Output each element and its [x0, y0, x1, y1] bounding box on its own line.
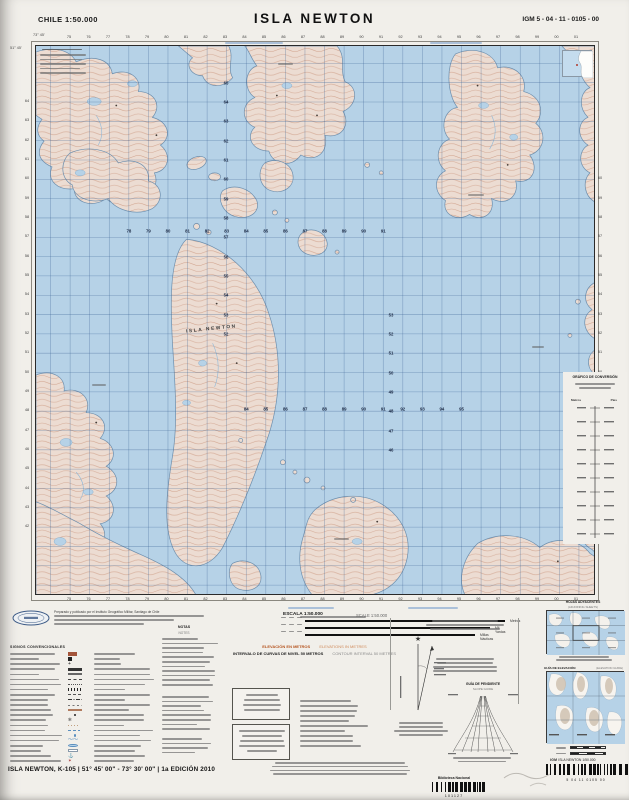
grid-number-label: 57 — [224, 235, 229, 240]
edge-grid-label: 97 — [496, 35, 500, 39]
text-smudge — [426, 624, 504, 626]
legend-label-smudge — [10, 699, 48, 701]
grid-number-label: 90 — [361, 407, 366, 412]
legend-label-smudge — [94, 725, 124, 727]
faint-print-mark — [288, 607, 334, 609]
elevation-guide-title-en: (ELEVATION GUIDE) — [596, 666, 623, 670]
slope-guide-diagram — [448, 692, 518, 756]
scale-tick-smudge — [297, 617, 302, 619]
mini-scale-bar — [570, 746, 606, 749]
edge-grid-label: 61 — [25, 157, 29, 161]
elevation-units-line: ELEVACIÓN EN METROS ELEVATIONS IN METRES — [0, 644, 629, 649]
legend-row: ✶ — [10, 759, 160, 763]
islet-dot — [575, 299, 580, 304]
text-smudge — [275, 762, 406, 764]
fence-icon — [68, 705, 82, 706]
islet-dot — [335, 250, 339, 254]
grid-number-label: 92 — [400, 407, 405, 412]
edge-grid-label: 92 — [398, 35, 402, 39]
conversion-subtext-smudge — [575, 383, 615, 385]
text-smudge — [162, 661, 210, 663]
grid-number-label: 65 — [224, 80, 229, 85]
edge-grid-label: 86 — [281, 35, 285, 39]
place-name-smudge — [92, 384, 106, 386]
legend-label-smudge — [94, 694, 150, 696]
scale-tick-smudge — [297, 624, 302, 626]
legend-label-smudge — [10, 714, 53, 716]
scale-bar-label: Metros — [510, 619, 520, 623]
scale-tick-smudge — [289, 624, 294, 626]
grid-number-label: 56 — [224, 254, 229, 259]
text-smudge — [162, 714, 211, 716]
edge-grid-label: 77 — [106, 35, 110, 39]
inset-row-smudge — [40, 59, 82, 61]
text-smudge — [246, 694, 279, 696]
edge-grid-label: 82 — [203, 35, 207, 39]
grid-number-label: 50 — [389, 370, 394, 375]
slope-guide-title-en: SLOPE GUIDE — [448, 687, 518, 691]
grid-number-label: 49 — [389, 389, 394, 394]
legend-label-smudge — [10, 674, 39, 676]
edge-grid-label: 81 — [184, 35, 188, 39]
text-smudge — [300, 735, 353, 737]
text-smudge — [239, 730, 286, 732]
legend-label-smudge — [10, 750, 41, 752]
grid-number-label: 79 — [146, 229, 151, 234]
islet-dot — [194, 223, 200, 229]
legend-label-smudge — [94, 730, 153, 732]
elevation-guide-map — [546, 671, 624, 743]
legend-row — [10, 713, 160, 717]
legend-label-smudge — [10, 745, 43, 747]
legend-row: ⚓ — [10, 754, 160, 758]
islet-dot — [239, 438, 243, 442]
text-smudge — [273, 773, 407, 775]
mini-scale-bar — [570, 752, 606, 755]
legend-label-smudge — [94, 755, 145, 757]
scale-tick-smudge — [289, 631, 294, 633]
legend-row — [10, 703, 160, 707]
edge-grid-label: 64 — [25, 99, 29, 103]
place-name-smudge — [278, 63, 293, 65]
map-sheet-scan: CHILE 1:50.000 ISLA NEWTON IGM 5 - 04 - … — [0, 0, 629, 800]
edge-grid-label: 53 — [25, 312, 29, 316]
edge-grid-label: 83 — [223, 35, 227, 39]
faint-print-mark — [408, 607, 458, 609]
edge-grid-label: 63 — [25, 118, 29, 122]
islet-dot — [272, 210, 277, 215]
edge-grid-label: 01 — [574, 35, 578, 39]
text-smudge — [162, 675, 215, 677]
marsh-icon — [68, 730, 80, 731]
legend-label-smudge — [94, 674, 150, 676]
islet — [260, 161, 293, 192]
grid-number-label: 86 — [283, 407, 288, 412]
legend-row: + — [10, 662, 160, 666]
publisher-smudge — [54, 619, 174, 621]
legend-label-smudge — [94, 658, 120, 660]
legend-label-smudge — [10, 719, 46, 721]
text-smudge — [239, 745, 285, 747]
conversion-graph-title: GRÁFICO DE CONVERSIÓN — [563, 375, 627, 379]
grid-number-label: 80 — [166, 229, 171, 234]
edge-grid-label: 00 — [554, 35, 558, 39]
legend-label-smudge — [94, 760, 134, 762]
edge-grid-label: 48 — [25, 408, 29, 412]
legend-label-smudge — [94, 745, 141, 747]
legend-row — [10, 672, 160, 676]
scale-title-en: SCALE 1:50.000 — [356, 613, 387, 618]
text-smudge — [162, 656, 214, 658]
place-name-smudge — [532, 346, 544, 348]
legend-row — [10, 688, 160, 692]
library-number: 101127 — [421, 794, 487, 798]
edge-grid-label: 42 — [25, 524, 29, 528]
metros-column-header: Metros — [571, 398, 581, 402]
legend-label-smudge — [10, 735, 62, 737]
grid-number-label: 60 — [224, 177, 229, 182]
grid-number-label: 89 — [342, 407, 347, 412]
legend-label-smudge — [94, 719, 144, 721]
edge-grid-label: 89 — [340, 35, 344, 39]
sand-icon — [68, 725, 80, 727]
edge-grid-label: 47 — [25, 428, 29, 432]
text-smudge — [162, 679, 210, 681]
edge-grid-label: 46 — [25, 447, 29, 451]
library-barcode — [432, 782, 476, 792]
grid-number-label: 58 — [224, 215, 229, 220]
text-smudge — [240, 740, 283, 742]
legend-label-smudge — [94, 740, 151, 742]
grid-number-label: 88 — [322, 229, 327, 234]
grid-number-label: 93 — [420, 407, 425, 412]
islet — [209, 173, 221, 181]
sheet-reference-line: ISLA NEWTON, K-105 | 51° 45' 00" - 73° 3… — [8, 766, 215, 773]
text-smudge — [300, 700, 351, 702]
edge-grid-label: 95 — [457, 35, 461, 39]
edge-grid-label: 78 — [125, 35, 129, 39]
grid-number-label: 82 — [205, 229, 210, 234]
grid-number-label: 85 — [263, 407, 268, 412]
edge-grid-label: 87 — [301, 35, 305, 39]
grid-number-label: 52 — [389, 331, 394, 336]
grid-number-label: 48 — [389, 409, 394, 414]
elevation-units-en: ELEVATIONS IN METRES — [319, 644, 366, 649]
text-smudge — [162, 747, 208, 749]
text-smudge — [300, 725, 368, 727]
text-smudge — [242, 735, 282, 737]
legend-label-smudge — [10, 725, 48, 727]
text-smudge — [300, 715, 355, 717]
legend-row — [10, 657, 160, 661]
contour-interval-en: CONTOUR INTERVAL 50 METRES — [332, 651, 396, 656]
pies-column-header: Pies — [611, 398, 617, 402]
pencil-annotation — [500, 768, 570, 792]
edge-grid-label: 59 — [25, 196, 29, 200]
framed-note-box — [232, 724, 290, 760]
edge-grid-label: 76 — [86, 35, 90, 39]
text-smudge — [458, 761, 507, 763]
inset-row-smudge — [40, 68, 80, 70]
edge-grid-label: 45 — [25, 466, 29, 470]
text-smudge — [399, 734, 442, 736]
elevation-guide-title-es: GUÍA DE ELEVACIÓN — [544, 666, 575, 670]
legend-row — [10, 749, 160, 753]
edge-grid-label: 84 — [242, 35, 246, 39]
edge-grid-label: 51 — [25, 350, 29, 354]
text-smudge — [430, 628, 501, 630]
text-smudge — [270, 770, 411, 772]
glacier-icon — [68, 749, 78, 753]
conversion-subtext-smudge — [579, 387, 611, 389]
edge-grid-label: 88 — [320, 35, 324, 39]
edge-grid-label: 43 — [25, 505, 29, 509]
grid-number-label: 64 — [224, 99, 229, 104]
land-southeast — [462, 536, 595, 595]
grid-number-label: 89 — [342, 229, 347, 234]
text-smudge — [162, 738, 202, 740]
grid-number-label: 46 — [389, 447, 394, 452]
rock-icon: ✻ — [68, 718, 84, 722]
grid-number-label: 85 — [263, 229, 268, 234]
text-smudge — [244, 709, 279, 711]
text-smudge — [559, 656, 608, 658]
conversion-ruler — [563, 404, 627, 542]
corner-longitude-label: 73° 45' — [33, 33, 45, 37]
text-smudge — [300, 730, 345, 732]
text-smudge — [162, 724, 197, 726]
scale-bar-label: Millas Náuticas — [480, 633, 493, 641]
legend-row — [10, 667, 160, 671]
framed-note-box — [232, 688, 290, 720]
spot-elevation-icon — [74, 714, 76, 716]
magnetic-declination-diagram: ★ — [398, 632, 448, 720]
inset-mini-map — [562, 50, 592, 77]
edge-grid-label: 62 — [25, 138, 29, 142]
edge-grid-label: 93 — [418, 35, 422, 39]
legend-label-smudge — [94, 679, 154, 681]
text-smudge — [272, 766, 409, 768]
map-legend-margin: Preparado y publicado por el Instituto G… — [0, 600, 629, 765]
contour-index-icon — [68, 709, 82, 710]
text-smudge — [300, 745, 361, 747]
lighthouse-icon: ✶ — [68, 759, 84, 763]
road-primary-icon — [68, 668, 82, 671]
text-smudge — [162, 705, 201, 707]
edge-grid-label: 52 — [25, 331, 29, 335]
legend-label-smudge — [94, 684, 145, 686]
edge-grid-label: 49 — [25, 389, 29, 393]
map-drawing — [36, 46, 595, 595]
legend-label-smudge — [94, 714, 144, 716]
grid-number-label: 84 — [244, 229, 249, 234]
edge-grid-label: 56 — [25, 254, 29, 258]
contour-interval-line: INTERVALO DE CURVAS DE NIVEL 50 METROS C… — [0, 651, 629, 656]
grid-number-label: 54 — [224, 293, 229, 298]
adjoining-sheets-title-en: (ADJOINING SHEETS) — [540, 605, 626, 609]
legend-label-smudge — [10, 668, 55, 670]
text-smudge — [162, 666, 205, 668]
edge-grid-label: 55 — [25, 273, 29, 277]
grid-number-label: 94 — [440, 407, 445, 412]
grid-number-label: 88 — [322, 407, 327, 412]
adjoining-sheets-title-es: HOJAS ADYACENTES — [540, 600, 626, 604]
grid-number-label: 81 — [185, 229, 190, 234]
edge-grid-label: 58 — [25, 215, 29, 219]
islet-dot — [365, 162, 370, 167]
text-smudge — [432, 620, 497, 622]
legend-row — [10, 744, 160, 748]
legend-label-smudge — [94, 689, 125, 691]
inset-row-smudge — [40, 54, 86, 56]
magnetic-north-arrow-icon — [430, 646, 434, 651]
text-smudge — [399, 722, 443, 724]
edge-grid-label: 91 — [379, 35, 383, 39]
power-line-icon — [68, 694, 82, 695]
legend-label-smudge — [94, 668, 150, 670]
igm-map-ref: ISLA NEWTON 1/50.000 — [558, 758, 595, 762]
conversion-graph-panel: GRÁFICO DE CONVERSIÓN Metros Pies — [563, 372, 627, 544]
text-smudge — [162, 743, 211, 745]
text-smudge — [300, 740, 353, 742]
text-smudge — [243, 704, 281, 706]
edge-grid-label: 85 — [262, 35, 266, 39]
stream-icon: 〜〜 — [68, 739, 84, 743]
legend-label-smudge — [10, 755, 51, 757]
publisher-smudge — [54, 615, 204, 617]
legend-row — [10, 678, 160, 682]
grid-number-label: 51 — [389, 351, 394, 356]
legend-row — [10, 693, 160, 697]
edge-grid-label: 50 — [25, 370, 29, 374]
place-name-smudge — [334, 538, 349, 540]
legend-label-smudge — [94, 704, 150, 706]
scale-tick-smudge — [289, 617, 294, 619]
grid-number-label: 91 — [381, 407, 386, 412]
notes-divider-rule — [390, 618, 391, 710]
grid-number-label: 95 — [459, 407, 464, 412]
grid-number-label: 84 — [244, 407, 249, 412]
edge-grid-label: 79 — [145, 35, 149, 39]
inset-row-smudge — [40, 63, 86, 65]
library-stamp-label: Biblioteca Nacional — [421, 776, 487, 780]
text-smudge — [162, 696, 209, 698]
legend-row — [10, 729, 160, 733]
legend-label-smudge — [10, 658, 39, 660]
grid-number-label: 63 — [224, 119, 229, 124]
legend-label-smudge — [10, 709, 51, 711]
grid-number-label: 86 — [283, 229, 288, 234]
adjoining-sheets-map — [546, 610, 624, 654]
scale-tick-smudge — [281, 617, 286, 619]
legend-label-smudge — [94, 735, 140, 737]
notes-divider-rule — [518, 618, 519, 704]
islet-dot — [351, 497, 356, 502]
text-smudge — [300, 710, 357, 712]
grid-number-label: 47 — [389, 428, 394, 433]
text-smudge — [247, 750, 278, 752]
edge-grid-label: 75 — [67, 35, 71, 39]
edge-grid-label: 44 — [25, 486, 29, 490]
place-name-smudge — [468, 194, 484, 196]
slope-guide-title-es: GUÍA DE PENDIENTE — [448, 682, 518, 686]
grid-number-label: 53 — [224, 312, 229, 317]
grid-number-label: 87 — [303, 407, 308, 412]
legend-label-smudge — [10, 730, 45, 732]
legend-row — [10, 708, 160, 712]
edge-grid-label: 94 — [437, 35, 441, 39]
text-smudge — [162, 670, 215, 672]
legend-row — [10, 723, 160, 727]
barcode-stripe — [485, 782, 488, 792]
igm-logo — [12, 610, 50, 626]
text-smudge — [162, 719, 211, 721]
contour-interval-es: INTERVALO DE CURVAS DE NIVEL 50 METROS — [233, 651, 323, 656]
grid-number-label: 91 — [381, 229, 386, 234]
grid-number-label: 61 — [224, 157, 229, 162]
edge-grid-label: 54 — [25, 292, 29, 296]
scale-tick-smudge — [281, 624, 286, 626]
text-smudge — [399, 726, 442, 728]
text-smudge — [162, 701, 213, 703]
text-smudge — [394, 730, 448, 732]
edge-grid-label: 98 — [515, 35, 519, 39]
publisher-smudge — [54, 623, 144, 625]
igm-word: IGM — [550, 758, 557, 762]
islet-dot — [293, 470, 297, 474]
islet-dot — [379, 171, 383, 175]
notes-title-es: NOTAS — [164, 625, 204, 629]
edge-grid-label: 80 — [164, 35, 168, 39]
grid-number-label: 52 — [224, 331, 229, 336]
boundary-international-icon — [68, 699, 82, 700]
text-smudge — [162, 728, 210, 730]
text-smudge — [244, 699, 279, 701]
grid-number-label: 87 — [303, 229, 308, 234]
text-smudge — [162, 638, 198, 640]
scale-tick-smudge — [281, 631, 286, 633]
islet-dot — [280, 460, 285, 465]
elevation-units-es: ELEVACIÓN EN METROS — [262, 644, 310, 649]
church-icon: + — [68, 662, 84, 666]
igm-reference-line: IGM ISLA NEWTON 1/50.000 — [550, 758, 596, 762]
text-smudge — [162, 752, 195, 754]
scale-label-smudge — [556, 753, 566, 755]
sheet-code: IGM 5 - 04 - 11 - 0105 - 00 — [522, 16, 599, 23]
legend-label-smudge — [94, 699, 125, 701]
legend-label-smudge — [94, 663, 121, 665]
grid-number-label: 78 — [126, 229, 131, 234]
text-smudge — [162, 684, 213, 686]
grid-number-label: 55 — [224, 273, 229, 278]
true-north-star-icon: ★ — [415, 635, 421, 643]
edge-grid-label: 90 — [359, 35, 363, 39]
road-secondary-icon — [68, 673, 82, 675]
legend-label-smudge — [10, 663, 60, 665]
topographic-map-area: ISLA NEWTON 7879808182838485868788899091… — [35, 45, 595, 595]
grid-number-label: 62 — [224, 138, 229, 143]
legend-row — [10, 683, 160, 687]
legend-label-smudge — [10, 694, 55, 696]
edge-grid-label: 99 — [535, 35, 539, 39]
legend-row — [10, 734, 160, 738]
publisher-text: Preparado y publicado por el Instituto G… — [54, 610, 244, 614]
text-smudge — [453, 757, 511, 759]
legend-label-smudge — [10, 684, 61, 686]
legend-label-smudge — [10, 689, 48, 691]
inset-row-smudge — [40, 72, 86, 74]
legend-label-smudge — [94, 750, 135, 752]
